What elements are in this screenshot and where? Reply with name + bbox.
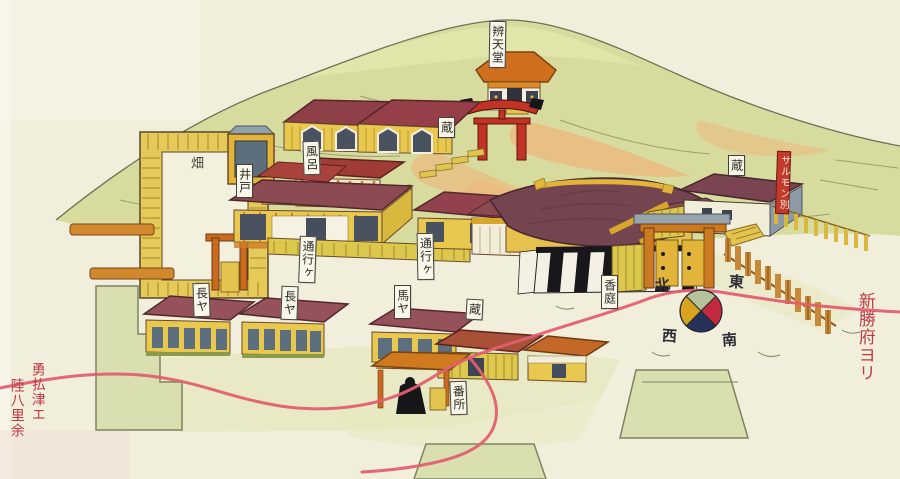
gate-post <box>704 228 714 288</box>
timber-beam-upper <box>70 224 154 235</box>
panel <box>354 216 378 241</box>
opening <box>336 127 356 150</box>
base <box>146 352 230 356</box>
compass-north-label: 北 <box>654 273 672 296</box>
window <box>552 364 566 378</box>
panel <box>310 331 321 352</box>
label-rowhouse-west: 長ヤ <box>192 283 210 318</box>
compass-east-label: 東 <box>728 270 745 292</box>
label-passage-lower: 通行ヶ <box>417 233 434 280</box>
lintel-band <box>528 356 586 363</box>
panel <box>280 330 291 351</box>
panel <box>200 328 211 349</box>
route-note-right: 新勝府ヨリ <box>855 292 873 382</box>
map-canvas: 辨天堂 蔵 風呂 井戸 畑 通行ヶ 通行ヶ 長ヤ 長ヤ 馬ヤ 蔵 蔵 番所 香庭… <box>0 0 900 479</box>
well-rim <box>228 126 274 134</box>
label-incense-garden: 香庭 <box>601 275 618 309</box>
panel <box>216 329 227 350</box>
label-passage-upper: 通行ヶ <box>298 236 316 284</box>
gate-roof <box>634 214 730 224</box>
label-place-cartouche: サルモン別 <box>775 151 791 214</box>
panel <box>264 329 275 350</box>
torii-post <box>517 124 526 160</box>
compass-south-label: 南 <box>721 329 737 351</box>
benten-lintel <box>488 82 540 88</box>
route-note-left-2: 陸八里余 <box>9 378 24 438</box>
label-stable: 馬ヤ <box>394 285 411 319</box>
compass-rose <box>680 290 722 332</box>
benten-dot <box>494 95 497 98</box>
label-bath: 風呂 <box>302 141 320 176</box>
gate-door <box>682 240 704 286</box>
panel <box>168 327 179 348</box>
opening <box>378 128 398 152</box>
office-hall <box>230 180 412 248</box>
panel <box>184 328 195 349</box>
panel <box>240 214 266 240</box>
panel <box>152 327 163 348</box>
guard-figure-head <box>405 377 415 387</box>
gate-post <box>644 228 654 288</box>
paper-highlight <box>0 0 200 120</box>
base <box>242 354 324 358</box>
door-stud <box>687 252 691 256</box>
compass-west-label: 西 <box>661 325 677 347</box>
torii-strut <box>499 110 505 119</box>
label-rowhouse-east: 長ヤ <box>280 286 298 321</box>
door <box>430 388 446 410</box>
label-guard-post: 番所 <box>449 381 467 416</box>
label-storehouse-hillside: 蔵 <box>438 117 455 138</box>
roof <box>370 308 480 332</box>
route-note-left-1: 勇払津エ <box>30 362 45 422</box>
gate-door <box>221 262 239 292</box>
door-stud <box>687 266 691 270</box>
rampart-south <box>620 370 748 438</box>
door-stud <box>661 266 665 270</box>
label-storehouse-middle: 蔵 <box>465 299 483 321</box>
label-storehouse-east: 蔵 <box>728 155 745 176</box>
gate-post <box>212 238 219 290</box>
opening <box>412 129 432 153</box>
door-stud <box>661 252 665 256</box>
label-benten-hall: 辨天堂 <box>489 21 506 68</box>
label-well: 井戸 <box>236 164 253 198</box>
label-field: 畑 <box>186 156 205 169</box>
panel <box>248 329 259 350</box>
timber-beam-lower <box>90 268 174 279</box>
panel <box>296 330 307 351</box>
